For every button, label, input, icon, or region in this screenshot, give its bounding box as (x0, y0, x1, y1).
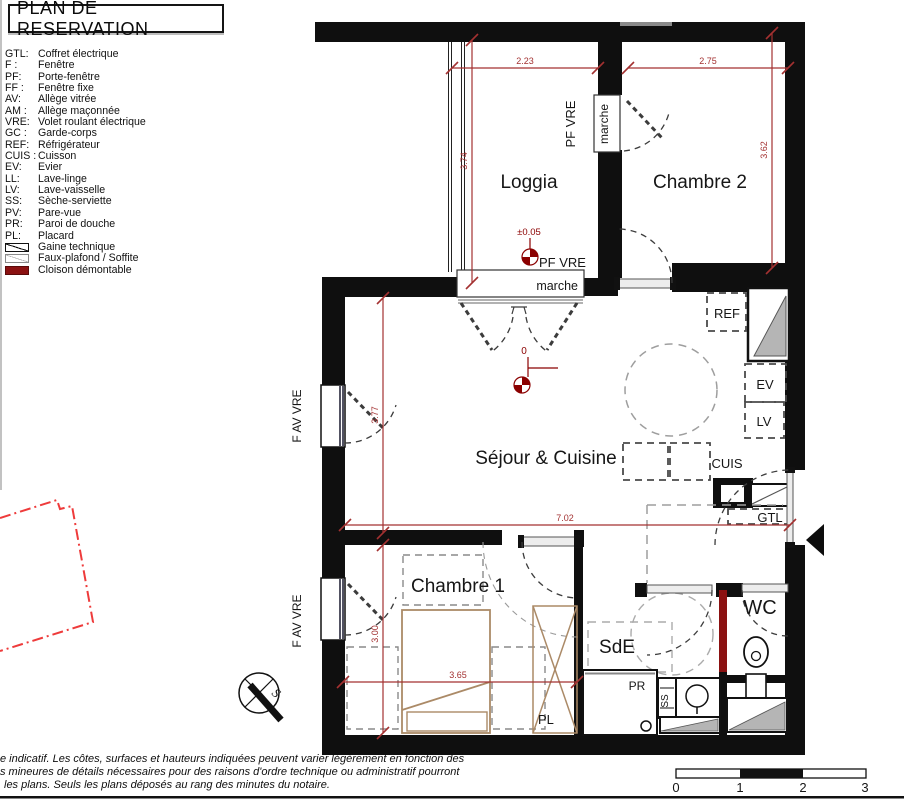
f-av-vre-1-label: F AV VRE (290, 389, 304, 442)
room-label-sejour: Séjour & Cuisine (475, 448, 617, 469)
disclaimer-line: les plans. Seuls les plans déposés au ra… (4, 779, 470, 792)
page-bottom-rule (0, 796, 904, 799)
wc-door-leaf (742, 584, 788, 592)
ev-label: EV (756, 377, 774, 392)
scale-label-2: 2 (799, 780, 806, 795)
scale-label-3: 3 (861, 780, 868, 795)
level-marker-sejour (514, 357, 558, 393)
disclaimer: e indicatif. Les côtes, surfaces et haut… (0, 753, 470, 793)
sde-fixtures (583, 593, 720, 735)
marche-top-label: marche (597, 104, 611, 144)
cloison-demontable (719, 590, 727, 672)
soffite-box-kitchen (751, 484, 788, 506)
page-title: PLAN DE RESERVATION (17, 0, 222, 40)
dim-loggia-width: 2.23 (516, 56, 534, 66)
cuis-box-1 (623, 443, 668, 480)
kitchen-niche (721, 485, 744, 502)
dim-chambre1-height: 3.00 (370, 625, 380, 643)
legend-symbol-row: Cloison démontable (5, 265, 255, 276)
dim-sejour-width: 7.02 (556, 513, 574, 523)
wc-fixtures (744, 637, 768, 698)
neighbor-unit-outline (0, 500, 93, 651)
level-sejour-text: 0 (521, 346, 527, 357)
window-sejour (321, 385, 345, 447)
entrance-arrow (806, 524, 824, 556)
nightstand-dashed (347, 647, 398, 729)
cloison-demontable-swatch (5, 266, 29, 275)
cuis-box-2 (670, 443, 710, 480)
dim-chambre1-width: 3.65 (449, 670, 467, 680)
level-loggia-text: ±0.05 (517, 227, 541, 238)
scale-label-0: 0 (672, 780, 679, 795)
room-label-loggia: Loggia (500, 172, 557, 193)
lv-label: LV (757, 414, 772, 429)
legend-abbr: PR: (5, 219, 38, 230)
chambre1-door-leaf (518, 535, 580, 548)
dim-loggia-height: 3.74 (459, 152, 469, 170)
plan-title-box: PLAN DE RESERVATION (8, 4, 224, 33)
f-av-vre-2-label: F AV VRE (290, 594, 304, 647)
pl-label: PL (538, 712, 554, 727)
scale-bar: 0 1 2 3 (672, 769, 868, 795)
room-label-chambre1: Chambre 1 (411, 576, 505, 597)
window-chambre1 (321, 578, 345, 640)
floor-plan-page: S 0 1 2 3 Loggia Chambre 2 Séjour & Cuis… (0, 0, 904, 800)
legend-row: F :Fenêtre (5, 60, 255, 71)
gaine-technique-kitchen (748, 288, 789, 361)
pf-vre-top-label: PF VRE (563, 100, 578, 147)
compass: S (239, 673, 284, 720)
chambre2-hall-door-leaf (614, 277, 676, 290)
toilet-tank (746, 674, 766, 698)
disclaimer-line: s mineures de détails nécessaires pour d… (0, 766, 470, 779)
dim-chambre2-height: 3.62 (759, 141, 769, 159)
level-marker-loggia (522, 238, 538, 265)
walls (315, 22, 805, 755)
legend-abbr: PL: (5, 231, 38, 242)
legend: GTL:Coffret électrique F :Fenêtre PF:Por… (5, 49, 255, 276)
bed (402, 610, 490, 733)
washbasin-cabinet (676, 678, 720, 718)
sde-door-leaf (647, 585, 712, 593)
legend-symbol-row: Faux-plafond / Soffite (5, 253, 255, 264)
cuis-label: CUIS (711, 456, 742, 471)
gtl-label: GTL (757, 510, 782, 525)
legend-label: Fenêtre (38, 60, 75, 71)
ss-label: SS (660, 694, 671, 708)
pr-label: PR (629, 679, 646, 693)
bed-foot (407, 712, 487, 731)
dim-sejour-height: 3.77 (370, 406, 380, 424)
gaine-technique-swatch (5, 243, 29, 252)
legend-label: Faux-plafond / Soffite (38, 253, 139, 264)
room-label-sde: SdE (599, 637, 635, 658)
marche-bottom-label: marche (536, 279, 578, 293)
pf-vre-bottom-label: PF VRE (539, 255, 586, 270)
table-circle (625, 344, 717, 436)
entrance-door-leaf (785, 467, 795, 548)
room-label-wc: WC (743, 597, 776, 619)
legend-row: PR:Paroi de douche (5, 219, 255, 230)
compass-south-label: S (269, 685, 284, 701)
legend-label: Paroi de douche (38, 219, 115, 230)
shower-tray (583, 670, 657, 735)
dim-chambre2-width: 2.75 (699, 56, 717, 66)
scale-label-1: 1 (736, 780, 743, 795)
turning-circle (631, 593, 713, 675)
room-label-chambre2: Chambre 2 (653, 172, 747, 193)
faux-plafond-swatch (5, 254, 29, 263)
disclaimer-line: e indicatif. Les côtes, surfaces et haut… (0, 753, 470, 766)
ref-label: REF (714, 306, 740, 321)
legend-abbr: F : (5, 60, 38, 71)
legend-label: Cloison démontable (38, 265, 132, 276)
